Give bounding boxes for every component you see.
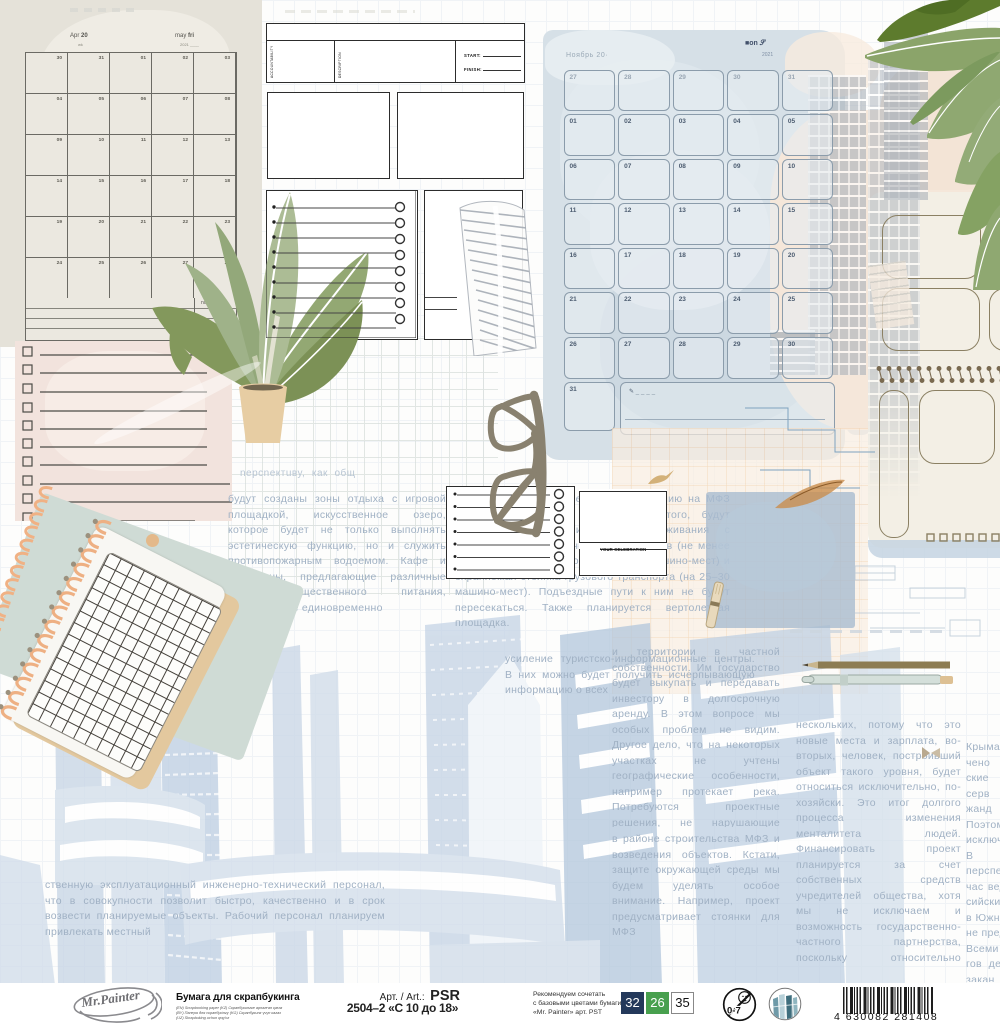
svg-text:Mr.Painter: Mr.Painter [79, 987, 141, 1010]
svg-text:0-7: 0-7 [727, 1006, 741, 1017]
